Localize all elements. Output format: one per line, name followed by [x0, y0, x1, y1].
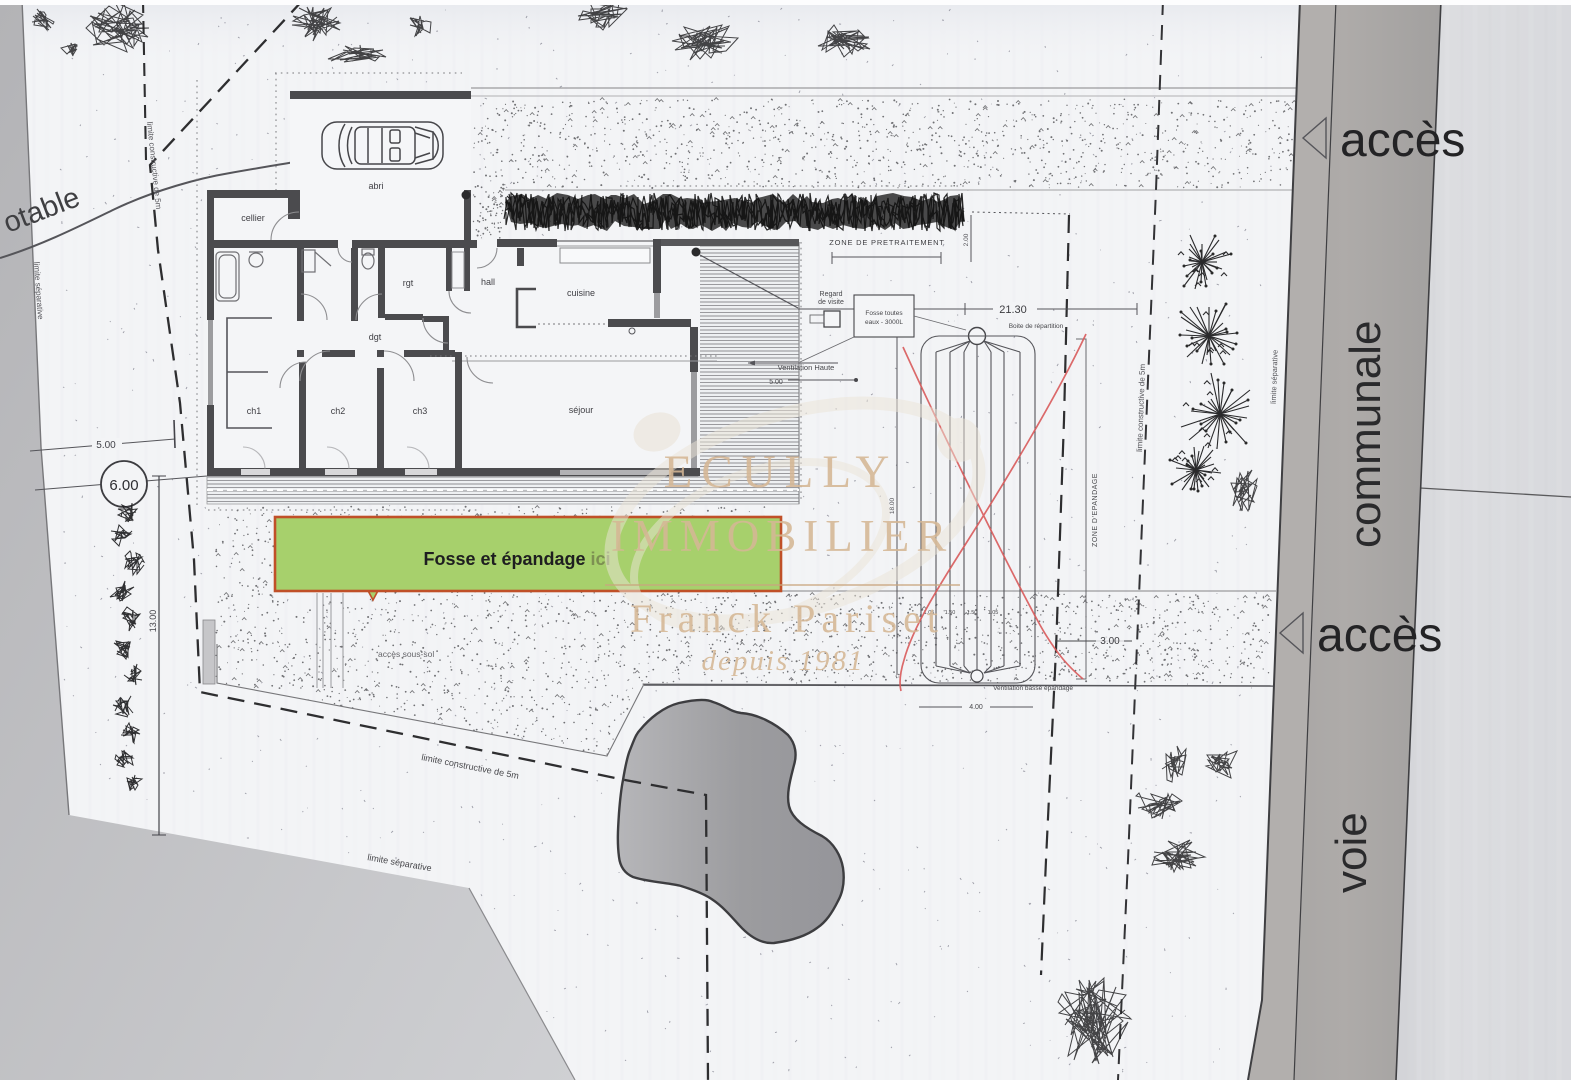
svg-text:communale: communale [1341, 321, 1390, 548]
svg-text:6.00: 6.00 [109, 477, 138, 494]
svg-text:dgt: dgt [369, 332, 382, 342]
svg-text:1.50: 1.50 [967, 610, 978, 616]
svg-text:13.00: 13.00 [148, 610, 158, 633]
svg-text:abri: abri [368, 181, 383, 191]
svg-text:ch1: ch1 [247, 406, 262, 416]
svg-text:rgt: rgt [403, 278, 414, 288]
svg-text:accès: accès [1317, 609, 1442, 662]
svg-text:5.00: 5.00 [96, 440, 116, 451]
svg-text:accès sous-sol: accès sous-sol [378, 649, 434, 659]
svg-text:Regard: Regard [820, 291, 843, 298]
svg-text:21.30: 21.30 [999, 304, 1027, 316]
svg-text:cellier: cellier [241, 213, 265, 223]
svg-text:ZONE D’EPANDAGE: ZONE D’EPANDAGE [1092, 473, 1099, 547]
svg-text:Boite de répartition: Boite de répartition [1009, 323, 1064, 330]
svg-text:4.00: 4.00 [969, 704, 983, 711]
svg-text:1.05: 1.05 [988, 610, 999, 616]
svg-text:IMMOBILIER: IMMOBILIER [611, 511, 953, 561]
svg-text:de visite: de visite [818, 299, 844, 306]
svg-text:voie: voie [1327, 812, 1376, 893]
svg-text:hall: hall [481, 277, 495, 287]
svg-text:ch2: ch2 [331, 406, 346, 416]
svg-text:depuis 1981: depuis 1981 [702, 645, 865, 677]
svg-text:séjour: séjour [569, 405, 594, 415]
svg-text:Fosse toutes: Fosse toutes [865, 310, 903, 317]
svg-text:Ventilation Haute: Ventilation Haute [778, 363, 835, 372]
svg-text:accès: accès [1340, 114, 1465, 167]
svg-text:Franck Pariset: Franck Pariset [630, 596, 944, 641]
svg-text:ECULLY: ECULLY [664, 446, 899, 498]
svg-text:1.50: 1.50 [945, 610, 956, 616]
svg-text:limite séparative: limite séparative [1269, 350, 1280, 404]
svg-text:cuisine: cuisine [567, 288, 595, 298]
svg-text:Ventilation basse épandage: Ventilation basse épandage [993, 685, 1073, 692]
svg-text:ZONE DE PRETRAITEMENT: ZONE DE PRETRAITEMENT [829, 238, 945, 247]
svg-text:3.00: 3.00 [1100, 636, 1120, 647]
svg-text:ch3: ch3 [413, 406, 428, 416]
svg-text:5.00: 5.00 [769, 379, 783, 386]
svg-text:eaux - 3000L: eaux - 3000L [865, 319, 903, 326]
svg-text:2.00: 2.00 [963, 233, 970, 246]
svg-text:Fosse et épandage ici: Fosse et épandage ici [423, 549, 610, 569]
